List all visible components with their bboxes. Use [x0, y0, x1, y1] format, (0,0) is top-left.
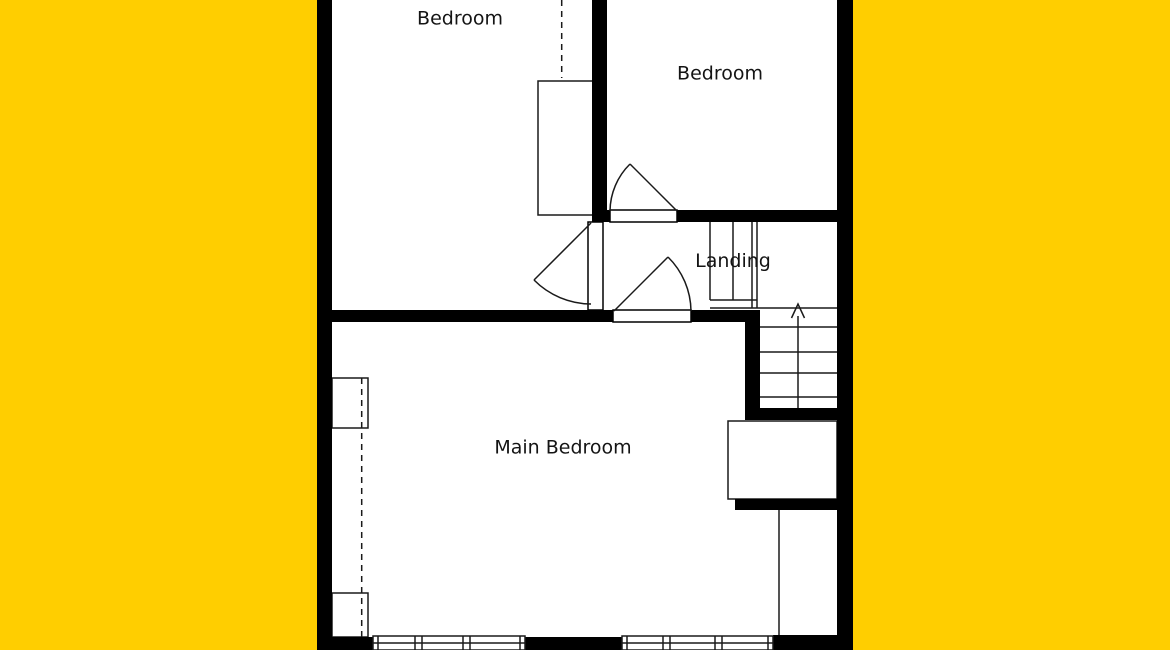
wall-bottom-right [773, 635, 853, 650]
wardrobe-main-bedroom-bottom [332, 593, 368, 637]
wall-main-bedroom-top-right [691, 310, 745, 322]
floor-plan: Bedroom Bedroom Landing Main Bedroom [0, 0, 1170, 650]
room-label-main-bedroom: Main Bedroom [494, 437, 631, 459]
wall-below-stairs [748, 408, 853, 420]
wall-bedroom-divider [592, 0, 607, 222]
wall-landing-top [677, 210, 837, 222]
doorway-main-bedroom [613, 310, 691, 322]
wall-landing-top-left-stub [592, 210, 610, 222]
window-rear [622, 636, 773, 650]
room-label-bedroom-left: Bedroom [417, 8, 503, 30]
wall-stairwell-left [745, 310, 760, 420]
wall-bottom-middle [525, 637, 622, 650]
under-stairs-cupboard [728, 421, 837, 499]
room-label-landing: Landing [695, 250, 771, 272]
window-main-bedroom [373, 636, 525, 650]
room-label-bedroom-right: Bedroom [677, 63, 763, 85]
floor-plan-canvas: Bedroom Bedroom Landing Main Bedroom [0, 0, 1170, 650]
doorway-bedroom-right [610, 210, 677, 222]
wall-exterior-right [837, 0, 853, 650]
wardrobe-main-bedroom-top [332, 378, 368, 428]
wall-bottom-left [317, 637, 373, 650]
wall-below-cupboard [735, 499, 837, 510]
wall-exterior-left [317, 0, 332, 650]
wall-main-bedroom-top-left [317, 310, 613, 322]
doorway-bedroom-left [588, 222, 603, 310]
